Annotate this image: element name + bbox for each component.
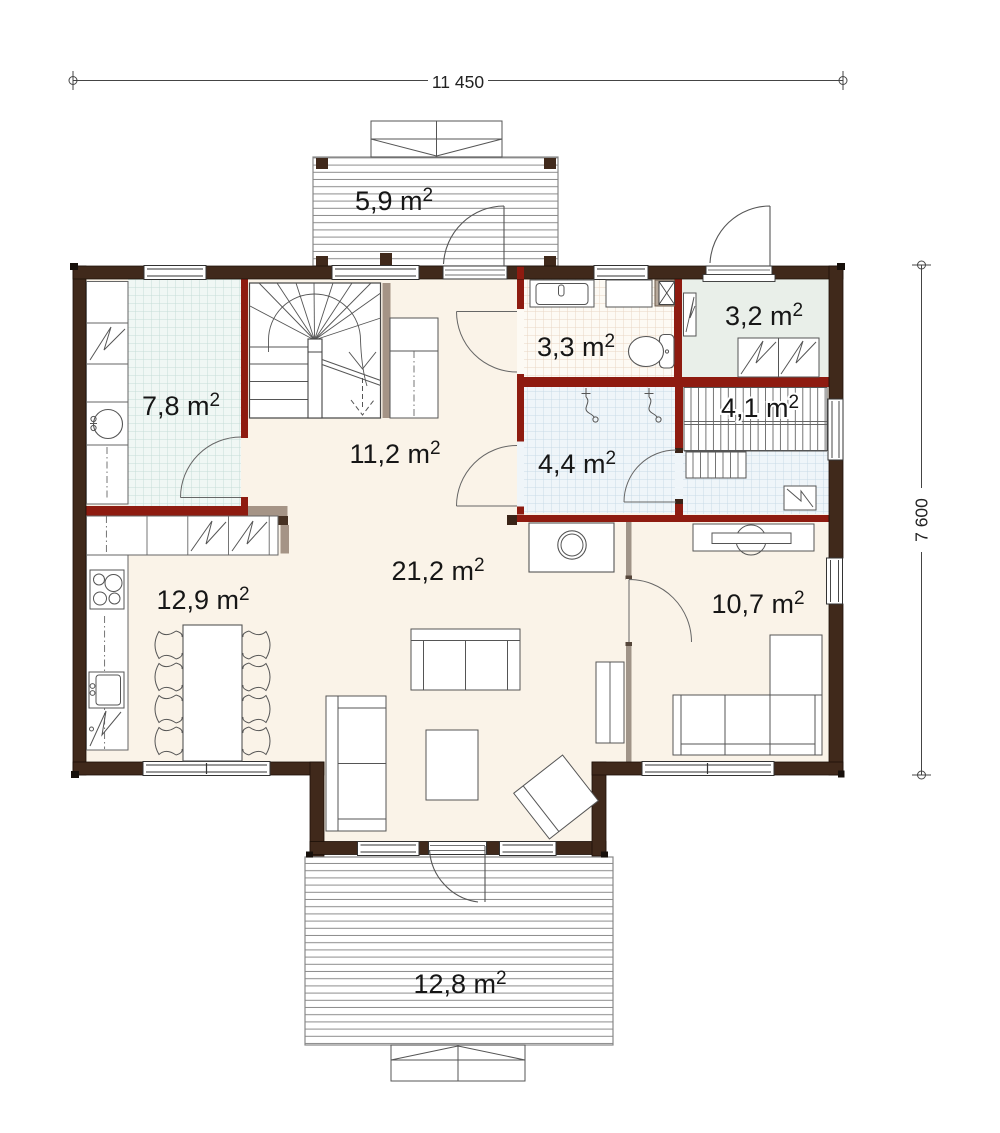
svg-text:4,4 m2: 4,4 m2 xyxy=(538,448,616,479)
svg-text:3,3 m2: 3,3 m2 xyxy=(537,331,615,362)
svg-text:12,8 m2: 12,8 m2 xyxy=(413,968,506,999)
svg-text:4,1 m2: 4,1 m2 xyxy=(721,392,799,423)
svg-text:11 450: 11 450 xyxy=(432,72,484,92)
svg-text:7,8 m2: 7,8 m2 xyxy=(142,390,220,421)
svg-text:11,2 m2: 11,2 m2 xyxy=(349,438,440,469)
svg-text:5,9 m2: 5,9 m2 xyxy=(355,185,433,216)
svg-text:10,7 m2: 10,7 m2 xyxy=(711,588,804,619)
svg-text:21,2 m2: 21,2 m2 xyxy=(391,555,484,586)
svg-text:3,2 m2: 3,2 m2 xyxy=(725,300,803,331)
svg-text:12,9 m2: 12,9 m2 xyxy=(156,584,249,615)
svg-text:7 600: 7 600 xyxy=(912,498,932,542)
